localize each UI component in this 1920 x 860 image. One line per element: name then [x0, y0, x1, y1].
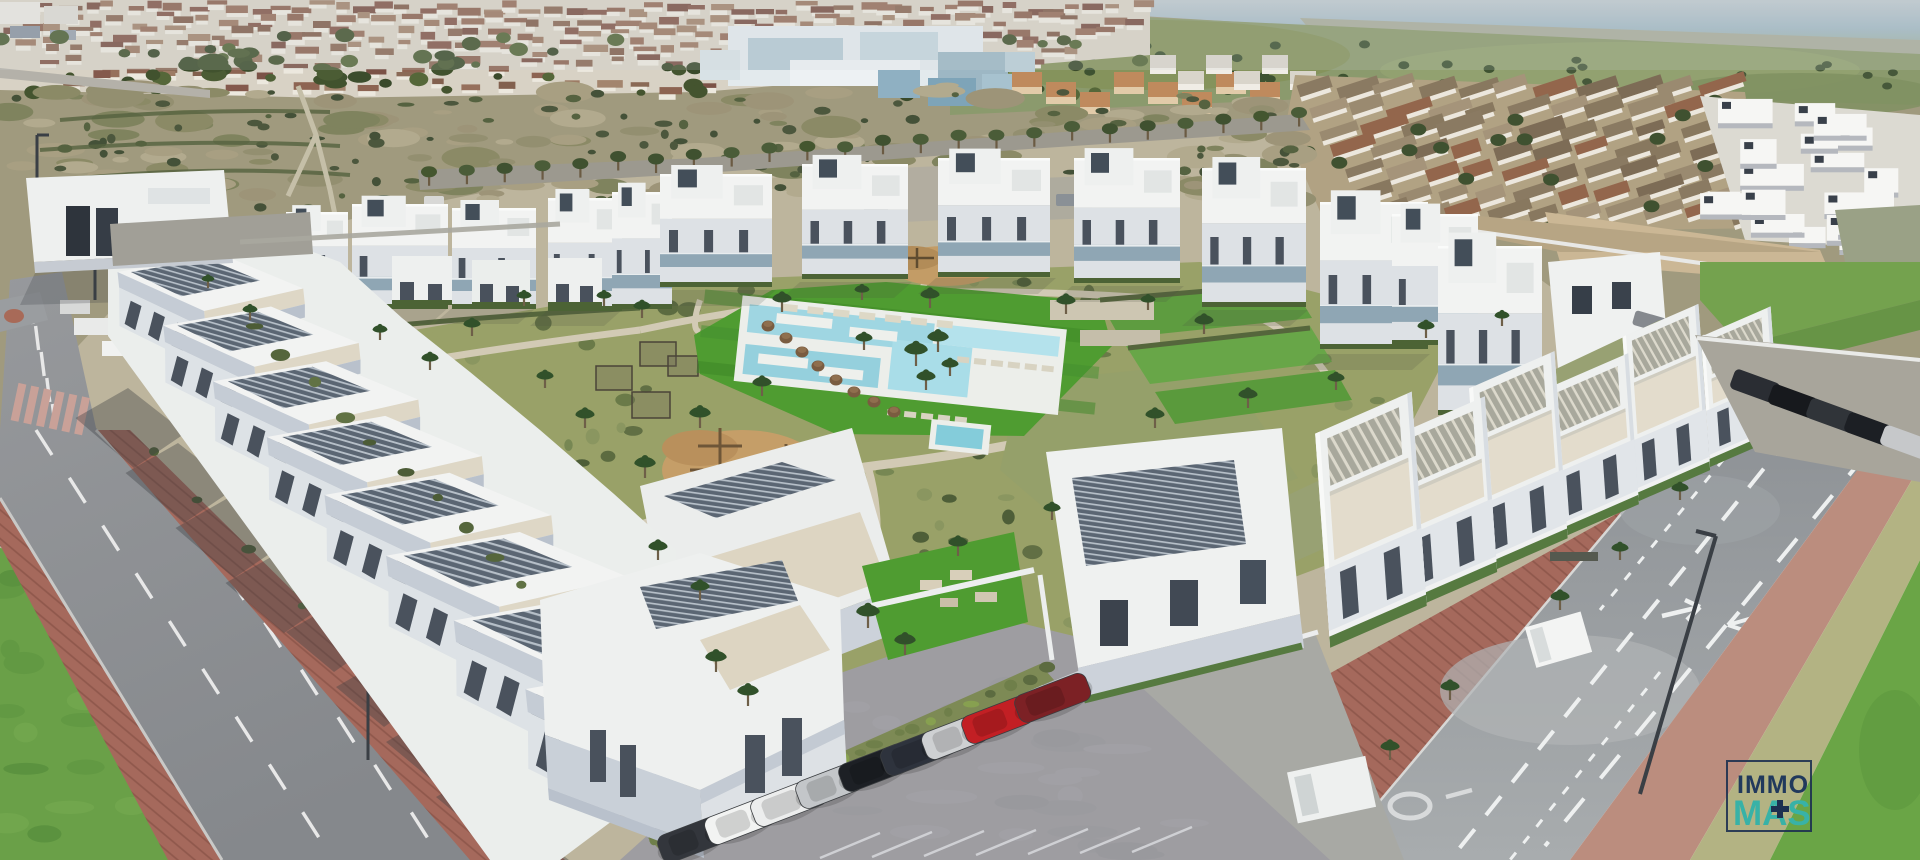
- svg-text:MAS: MAS: [1733, 794, 1811, 833]
